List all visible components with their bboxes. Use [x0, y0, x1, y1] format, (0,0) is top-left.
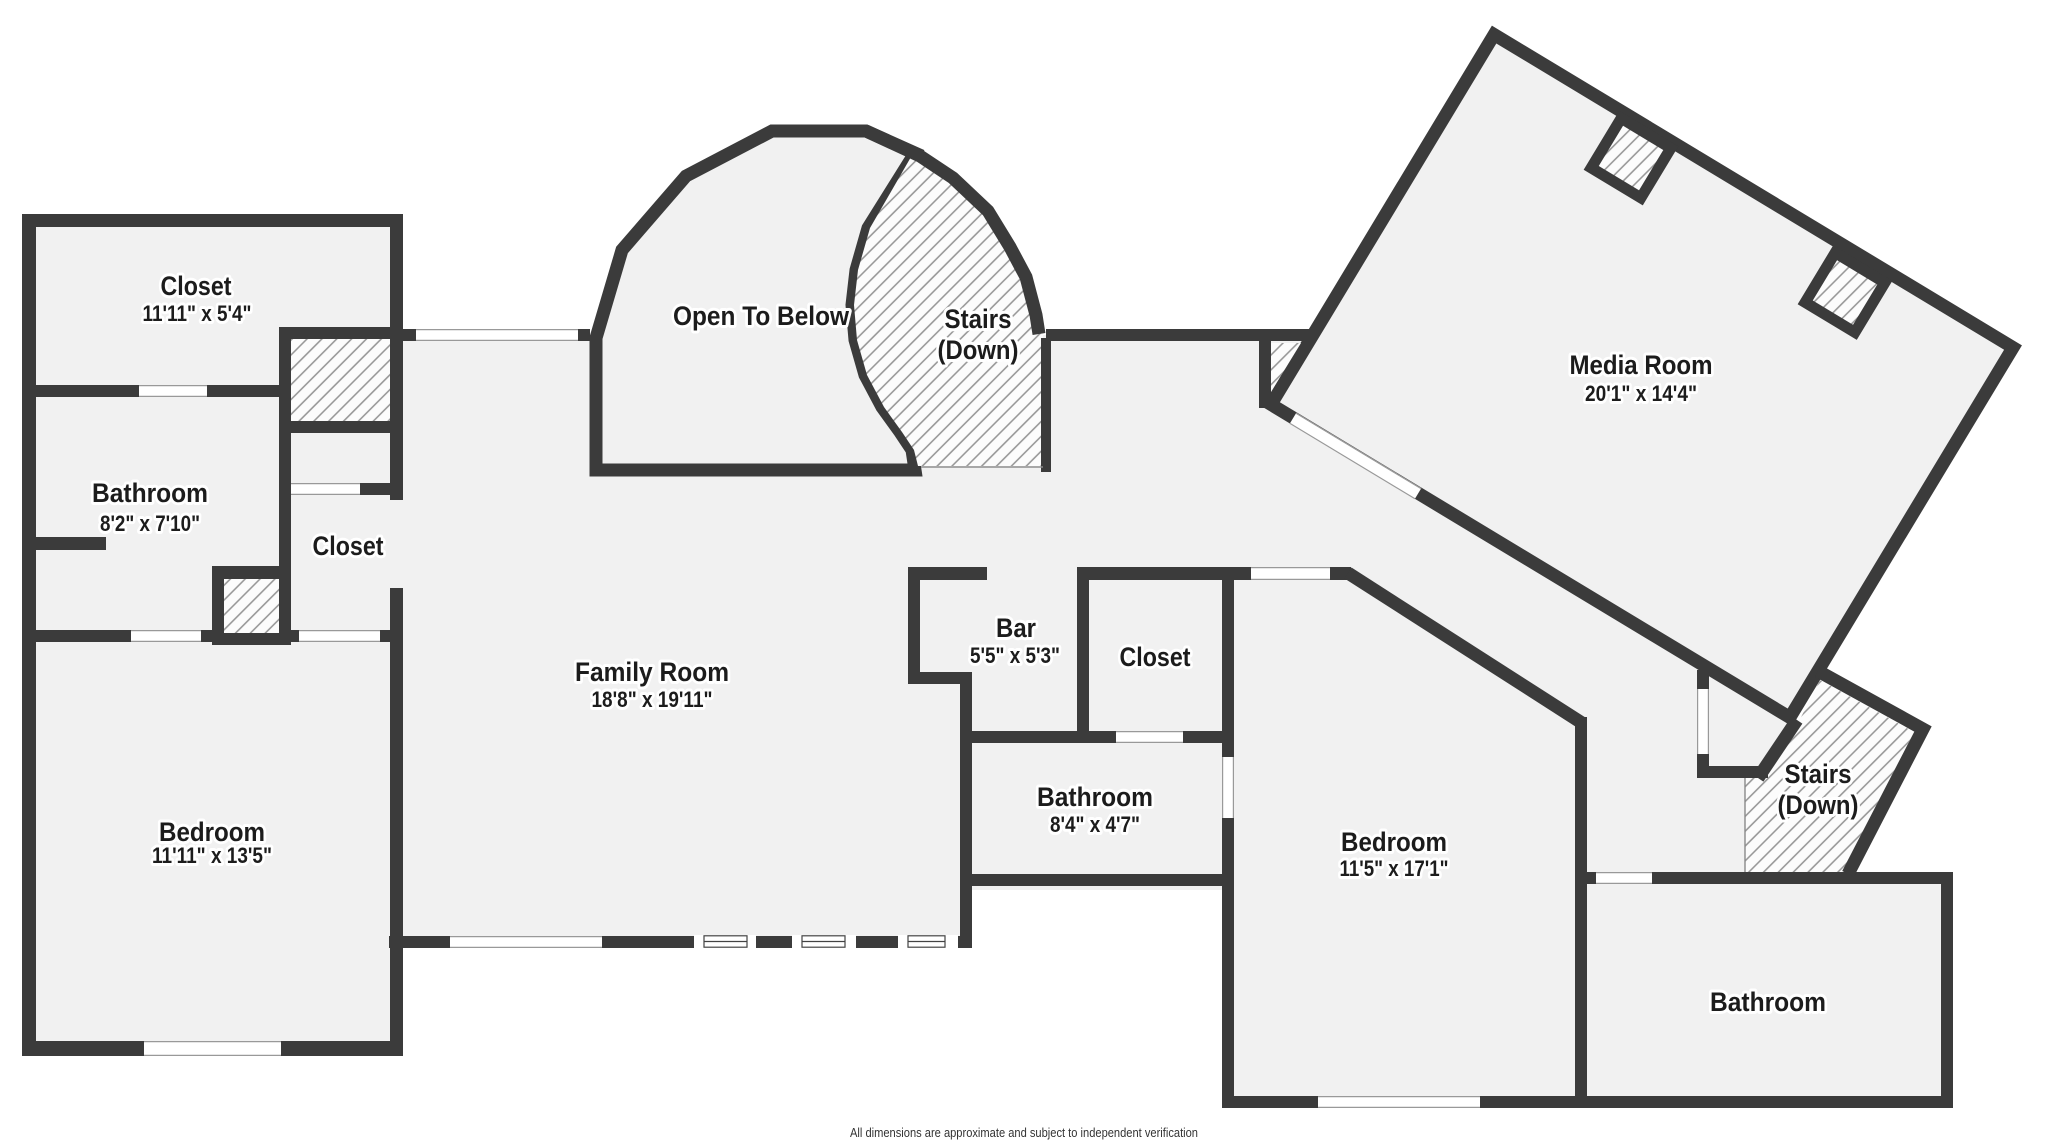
svg-text:Bedroom: Bedroom — [1341, 827, 1447, 857]
svg-text:18'8" x 19'11": 18'8" x 19'11" — [592, 687, 713, 712]
svg-text:11'5" x 17'1": 11'5" x 17'1" — [1340, 856, 1449, 881]
svg-text:Stairs: Stairs — [1785, 759, 1852, 789]
svg-text:Stairs: Stairs — [945, 304, 1012, 334]
svg-text:Open To Below: Open To Below — [673, 301, 850, 331]
svg-text:11'11" x 13'5": 11'11" x 13'5" — [152, 843, 272, 868]
svg-text:5'5" x 5'3": 5'5" x 5'3" — [970, 643, 1060, 668]
svg-text:(Down): (Down) — [938, 335, 1019, 365]
svg-text:Closet: Closet — [161, 271, 232, 301]
svg-text:Media Room: Media Room — [1570, 350, 1713, 380]
svg-text:Family Room: Family Room — [575, 657, 729, 687]
svg-text:8'2" x 7'10": 8'2" x 7'10" — [100, 511, 200, 536]
svg-text:Closet: Closet — [313, 531, 384, 561]
svg-text:Bathroom: Bathroom — [1710, 987, 1826, 1017]
svg-text:All dimensions are approximate: All dimensions are approximate and subje… — [850, 1125, 1198, 1140]
svg-text:Bathroom: Bathroom — [1037, 782, 1153, 812]
svg-text:Bar: Bar — [996, 613, 1036, 643]
svg-text:20'1" x 14'4": 20'1" x 14'4" — [1585, 381, 1697, 406]
svg-text:11'11" x 5'4": 11'11" x 5'4" — [143, 301, 252, 326]
svg-text:(Down): (Down) — [1778, 790, 1859, 820]
svg-text:8'4" x 4'7": 8'4" x 4'7" — [1050, 812, 1140, 837]
svg-text:Closet: Closet — [1120, 642, 1191, 672]
svg-text:Bathroom: Bathroom — [92, 478, 208, 508]
